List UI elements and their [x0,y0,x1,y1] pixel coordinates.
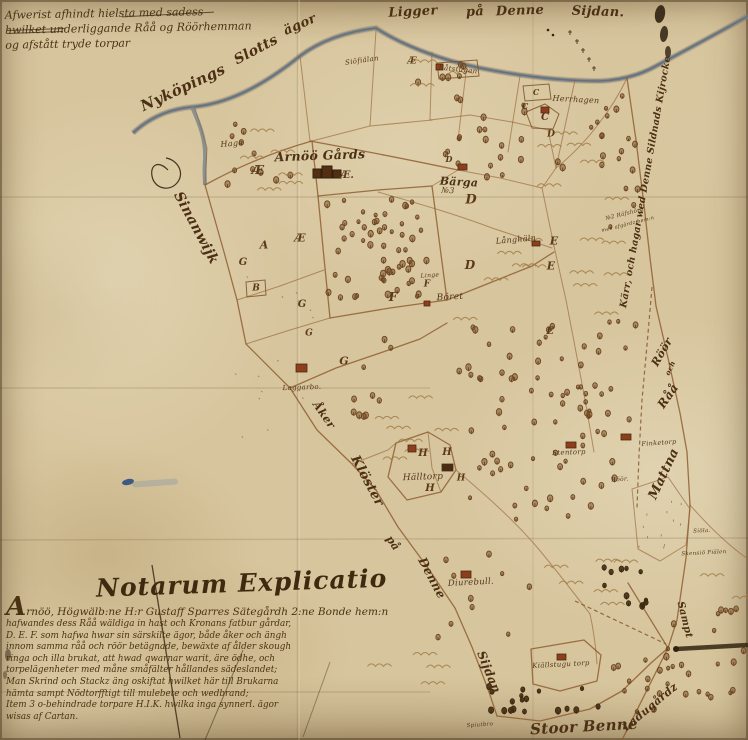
map-label-röör: Röör. [611,477,629,484]
map-label-siöla: Siöla. [693,529,711,535]
parcel-letter-æ: Æ [252,164,264,176]
map-label-på: på [384,534,402,553]
parcel-letter-c: C [522,102,528,110]
map-label-skensiö-fiälen: Skensiö Fiälen [681,550,726,558]
legend-line: Arnöö, Högwälb:ne H:r Gustaff Sparres Sä… [6,602,406,619]
parcel-letter-a: A [260,240,269,251]
map-label-laggarbo: Laggarbo. [282,384,321,392]
parcel-letter-b: B [252,285,260,294]
parcel-letter-h: H [425,484,434,494]
map-label-mattna: Mattna [647,447,682,502]
map-label-klöster: Klöster [348,453,386,508]
legend-line: Item 3 o-behindrade torpare H.I.K. hwilk… [6,700,406,712]
legend-line: ringa och illa brukat, att hwad qwarnar … [6,654,406,666]
map-label-råå: Råå [655,382,680,411]
map-label-denne: Denne [496,4,545,19]
parcel-letter-f: F [389,291,398,303]
map-label-herrhagen: Herrhagen [552,95,599,105]
map-canvas: Afwerist afhindt hielsta med sadess hwil… [0,0,748,740]
parcel-letter-e: E [547,261,555,272]
parcel-letter-d: D [446,155,453,163]
legend-line: D. E. F. som hafwa hwar sin särskilte äg… [6,631,406,643]
map-label-hälltorp: Hälltorp [403,473,444,483]
parcel-letter-æ: Æ [407,58,416,67]
map-label-båtstugan: Båtstugan [438,64,477,75]
parcel-letter-æ: Æ. [340,171,354,181]
parcel-letter-d: D [547,131,555,140]
parcel-letter-f: F [424,281,430,290]
parcel-letter-d: D [465,194,476,207]
legend-line: torpelägenheter med måne småfälter hålla… [6,665,406,677]
map-label-sampt: Sampt [675,601,694,640]
legend-line: hafwandes dess Råå wäldiga in hast och K… [6,619,406,631]
legend-line: hämta sampt Nödtorfftigt till mulebete o… [6,689,406,701]
parcel-letter-c: C [541,113,549,123]
legend-line: wisas af Cartan. [6,712,406,724]
map-label-hage: Hage [220,139,243,149]
legend-line: Man Skrind och Stackz äng oskiftat hwilk… [6,677,406,689]
parcel-letter-e: E [546,327,554,337]
map-label-arnöö-gårds: Arnöö Gårds [274,148,365,164]
parcel-letter-g: G [339,356,348,367]
map-label-stentorp: Stentorp [552,449,586,457]
parcel-letter-h: H [418,449,427,459]
parcel-letter-c: C [533,88,539,96]
legend-lines: Arnöö, Högwälb:ne H:r Gustaff Sparres Sä… [6,602,406,723]
map-label-siöfiälan: Siöfiälan [345,55,380,67]
parcel-letter-h: H [442,448,451,458]
map-label-nyköpings: Nyköpings [138,62,227,114]
parcel-letter-æ: Æ [294,233,305,244]
map-label-ligger: Ligger [388,4,438,20]
map-label-diurebull: Diurebull. [448,578,495,589]
notarum-explicatio: Notarum Explicatio Arnöö, Högwälb:ne H:r… [6,568,406,723]
map-label-kärr-och-hagar-wed-denne-sildnads-kijrocke: Kärr, och hagar wed Denne Sildnads Kijro… [619,55,673,308]
map-label-sijdan: Sijdan [475,649,503,695]
map-label-långhäln: Långhäln [496,234,537,245]
parcel-letter-h: H [457,475,466,484]
map-label-sinanwijk: Sinanwijk [171,190,221,267]
parcel-letter-g: G [305,330,313,339]
map-label-på: på [466,5,485,19]
map-label-åker: Åker [311,399,337,430]
map-label-ägor: ägor [282,12,319,38]
map-label-ladugårdz: Ladugårdz [620,681,679,733]
map-label-böret: Böret [436,293,463,303]
map-label-och: och [664,360,677,376]
map-label-3: №3 [441,187,455,196]
parcel-letter-e: E [550,236,558,247]
legend-line: innom samma råå och röör betägnade, bewä… [6,642,406,654]
map-label-kiällstugu-torp: Kiällstugu torp [532,660,590,670]
map-label-spiutbro: Spiutbro [467,722,494,729]
legend-heading: Notarum Explicatio [96,562,427,602]
parcel-letter-d: D [465,259,475,271]
map-label-slotts: Slotts [232,33,280,68]
parcel-letter-g: G [239,258,248,268]
map-label-sijdan: Sijdan. [571,5,624,20]
parcel-letter-g: G [298,300,307,310]
